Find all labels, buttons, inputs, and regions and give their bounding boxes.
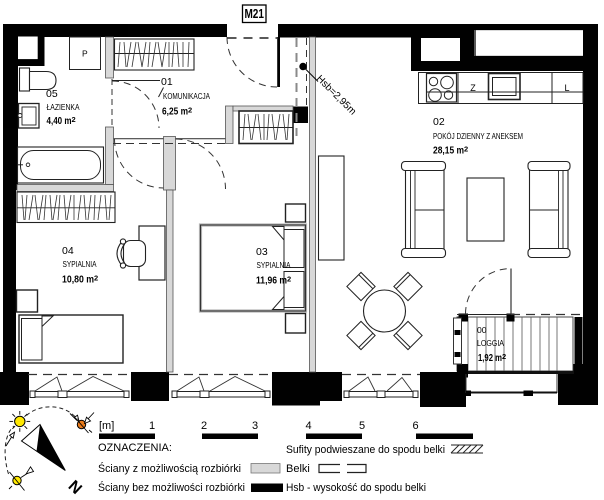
svg-text:L: L	[564, 83, 569, 93]
svg-text:3: 3	[252, 420, 258, 432]
svg-text:02: 02	[433, 116, 445, 128]
svg-text:2: 2	[201, 420, 207, 432]
svg-text:[m]: [m]	[99, 420, 114, 432]
svg-text:4: 4	[305, 420, 311, 432]
svg-text:P: P	[82, 49, 88, 59]
svg-text:1,92 m2: 1,92 m2	[478, 352, 506, 364]
svg-text:M21: M21	[244, 7, 264, 21]
svg-text:04: 04	[62, 245, 74, 257]
svg-text:00: 00	[477, 325, 487, 335]
svg-text:Ściany bez możliwości rozbiórk: Ściany bez możliwości rozbiórki	[98, 481, 245, 494]
svg-text:01: 01	[161, 76, 173, 88]
svg-text:Z: Z	[470, 83, 476, 93]
svg-text:1: 1	[149, 420, 155, 432]
svg-text:SYPIALNIA: SYPIALNIA	[63, 259, 97, 269]
svg-text:Belki: Belki	[286, 463, 310, 475]
svg-text:LOGGIA: LOGGIA	[477, 338, 504, 348]
svg-text:6: 6	[412, 420, 418, 432]
svg-text:4,40 m2: 4,40 m2	[47, 115, 76, 127]
svg-text:POKÓJ DZIENNY Z ANEKSEM: POKÓJ DZIENNY Z ANEKSEM	[433, 131, 523, 141]
svg-text:Ściany z możliwością rozbiórki: Ściany z możliwością rozbiórki	[98, 462, 241, 475]
svg-text:11,96 m2: 11,96 m2	[256, 274, 291, 286]
svg-text:Hsb - wysokość do spodu belki: Hsb - wysokość do spodu belki	[286, 482, 426, 494]
svg-text:ŁAZIENKA: ŁAZIENKA	[47, 102, 80, 112]
svg-text:10,80 m2: 10,80 m2	[62, 273, 98, 285]
svg-text:OZNACZENIA:: OZNACZENIA:	[98, 442, 172, 454]
svg-text:SYPIALNIA: SYPIALNIA	[257, 260, 291, 270]
svg-text:KOMUNIKACJA: KOMUNIKACJA	[163, 91, 210, 101]
svg-text:05: 05	[46, 88, 58, 100]
svg-text:03: 03	[256, 246, 268, 258]
svg-text:28,15 m2: 28,15 m2	[433, 144, 468, 156]
svg-text:5: 5	[359, 420, 365, 432]
svg-text:Sufity podwieszane do spodu be: Sufity podwieszane do spodu belki	[286, 444, 445, 456]
svg-text:6,25 m2: 6,25 m2	[162, 105, 192, 117]
